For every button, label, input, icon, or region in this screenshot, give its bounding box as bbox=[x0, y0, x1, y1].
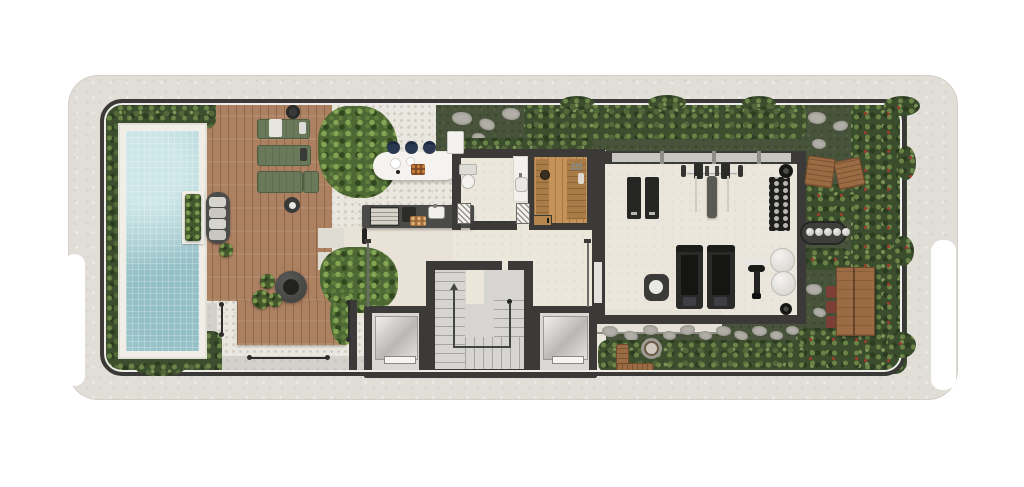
overflow-shrub bbox=[884, 96, 920, 116]
floor-plan-canvas bbox=[0, 0, 1024, 487]
overflow-shrub bbox=[896, 146, 916, 180]
overflow-shrub bbox=[886, 332, 916, 358]
side-notch-left bbox=[64, 254, 85, 386]
overflow-shrub bbox=[136, 362, 184, 376]
overflow-shrub bbox=[560, 96, 594, 110]
overflow-shrub bbox=[648, 95, 686, 110]
parapet-wall bbox=[100, 99, 906, 376]
side-notch-right bbox=[931, 240, 956, 390]
overflow-shrub bbox=[892, 236, 914, 266]
overflow-shrub bbox=[742, 96, 776, 110]
